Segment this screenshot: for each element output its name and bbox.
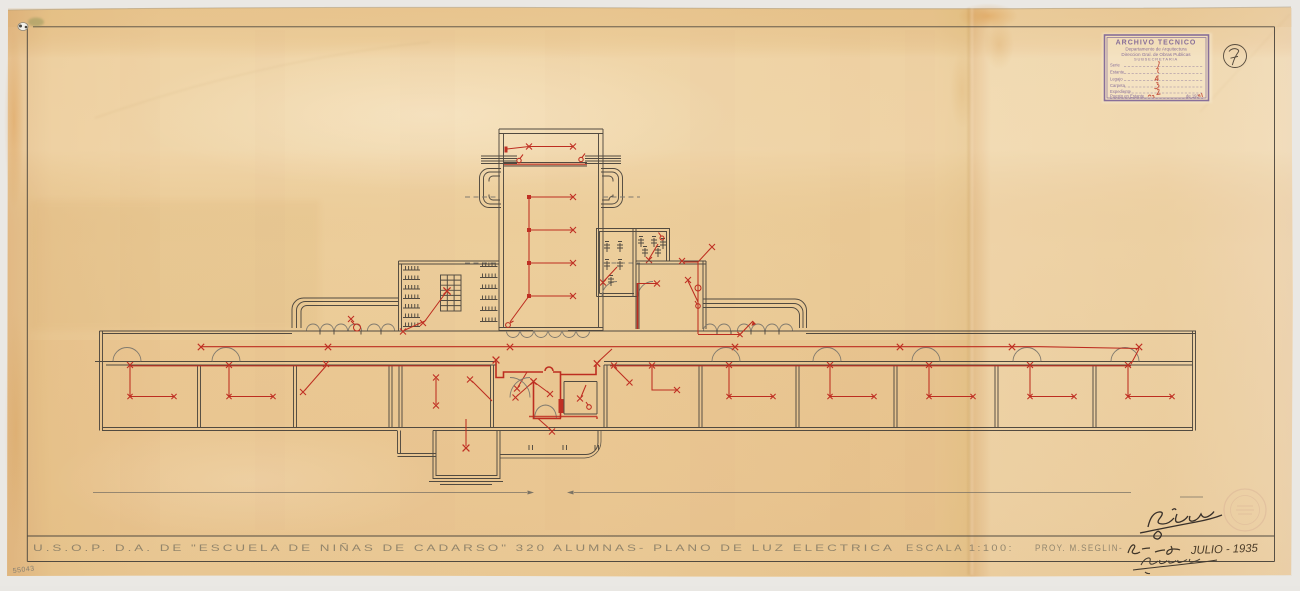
svg-text:ESCALA 1:100:: ESCALA 1:100: [906,543,1014,553]
svg-text:PROY. M.SEGLIN-: PROY. M.SEGLIN- [1035,543,1123,553]
svg-text:Departamento de Arquitectura: Departamento de Arquitectura [1125,47,1187,52]
svg-text:Legajo: Legajo [1110,77,1123,82]
svg-text:ARCHIVO TECNICO: ARCHIVO TECNICO [1116,40,1197,47]
svg-text:Puesto en Estante: Puesto en Estante [1110,94,1145,99]
svg-text:Serie: Serie [1110,63,1120,68]
svg-text:JULIO - 1935: JULIO - 1935 [1190,543,1259,557]
svg-text:U.S.O.P. D.A. DE "ESCUELA: U.S.O.P. D.A. DE "ESCUELA DE NIÑAS DE CA… [33,543,895,553]
svg-text:de 193: de 193 [1186,94,1199,99]
svg-text:Estante: Estante [1110,70,1125,75]
svg-text:SUBSECRETARIA: SUBSECRETARIA [1134,57,1178,62]
svg-text:Carpeta: Carpeta [1110,83,1126,88]
